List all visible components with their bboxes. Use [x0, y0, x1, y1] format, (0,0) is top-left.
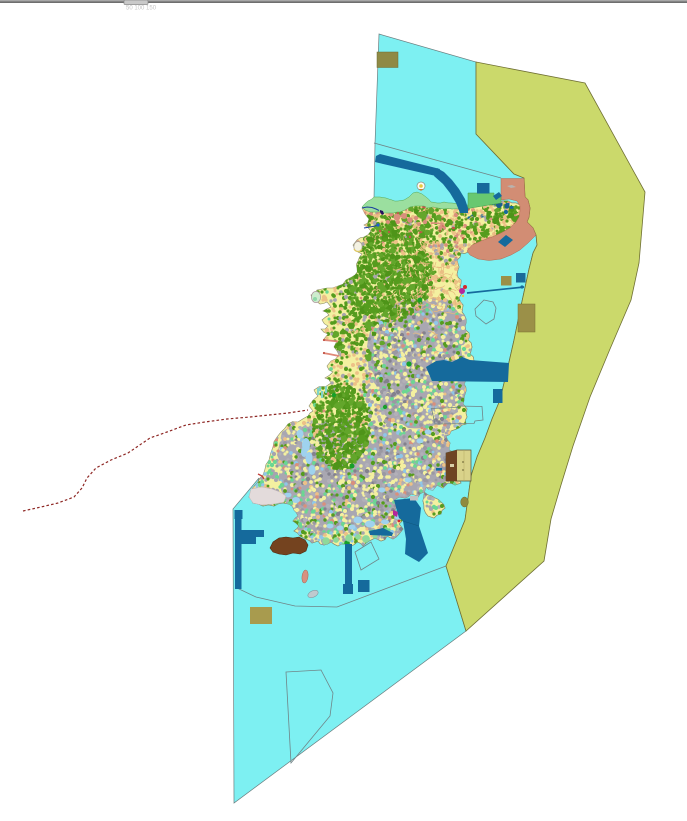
svg-text:50 100 150: 50 100 150 [126, 6, 157, 12]
